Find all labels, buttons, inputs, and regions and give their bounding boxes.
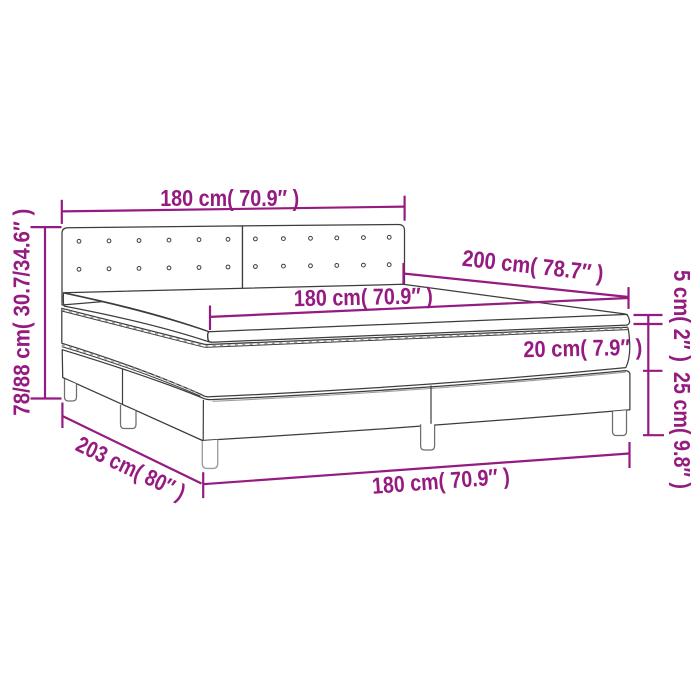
svg-text:20 cm( 7.9″ ): 20 cm( 7.9″ ) xyxy=(523,334,643,362)
svg-text:25 cm( 9.8″ ): 25 cm( 9.8″ ) xyxy=(669,372,695,489)
svg-text:180 cm( 70.9″ ): 180 cm( 70.9″ ) xyxy=(160,185,299,211)
svg-text:180 cm( 70.9″ ): 180 cm( 70.9″ ) xyxy=(294,282,434,311)
svg-text:78/88 cm( 30.7/34.6″ ): 78/88 cm( 30.7/34.6″ ) xyxy=(9,209,35,416)
svg-text:5 cm( 2″ ): 5 cm( 2″ ) xyxy=(669,270,695,362)
